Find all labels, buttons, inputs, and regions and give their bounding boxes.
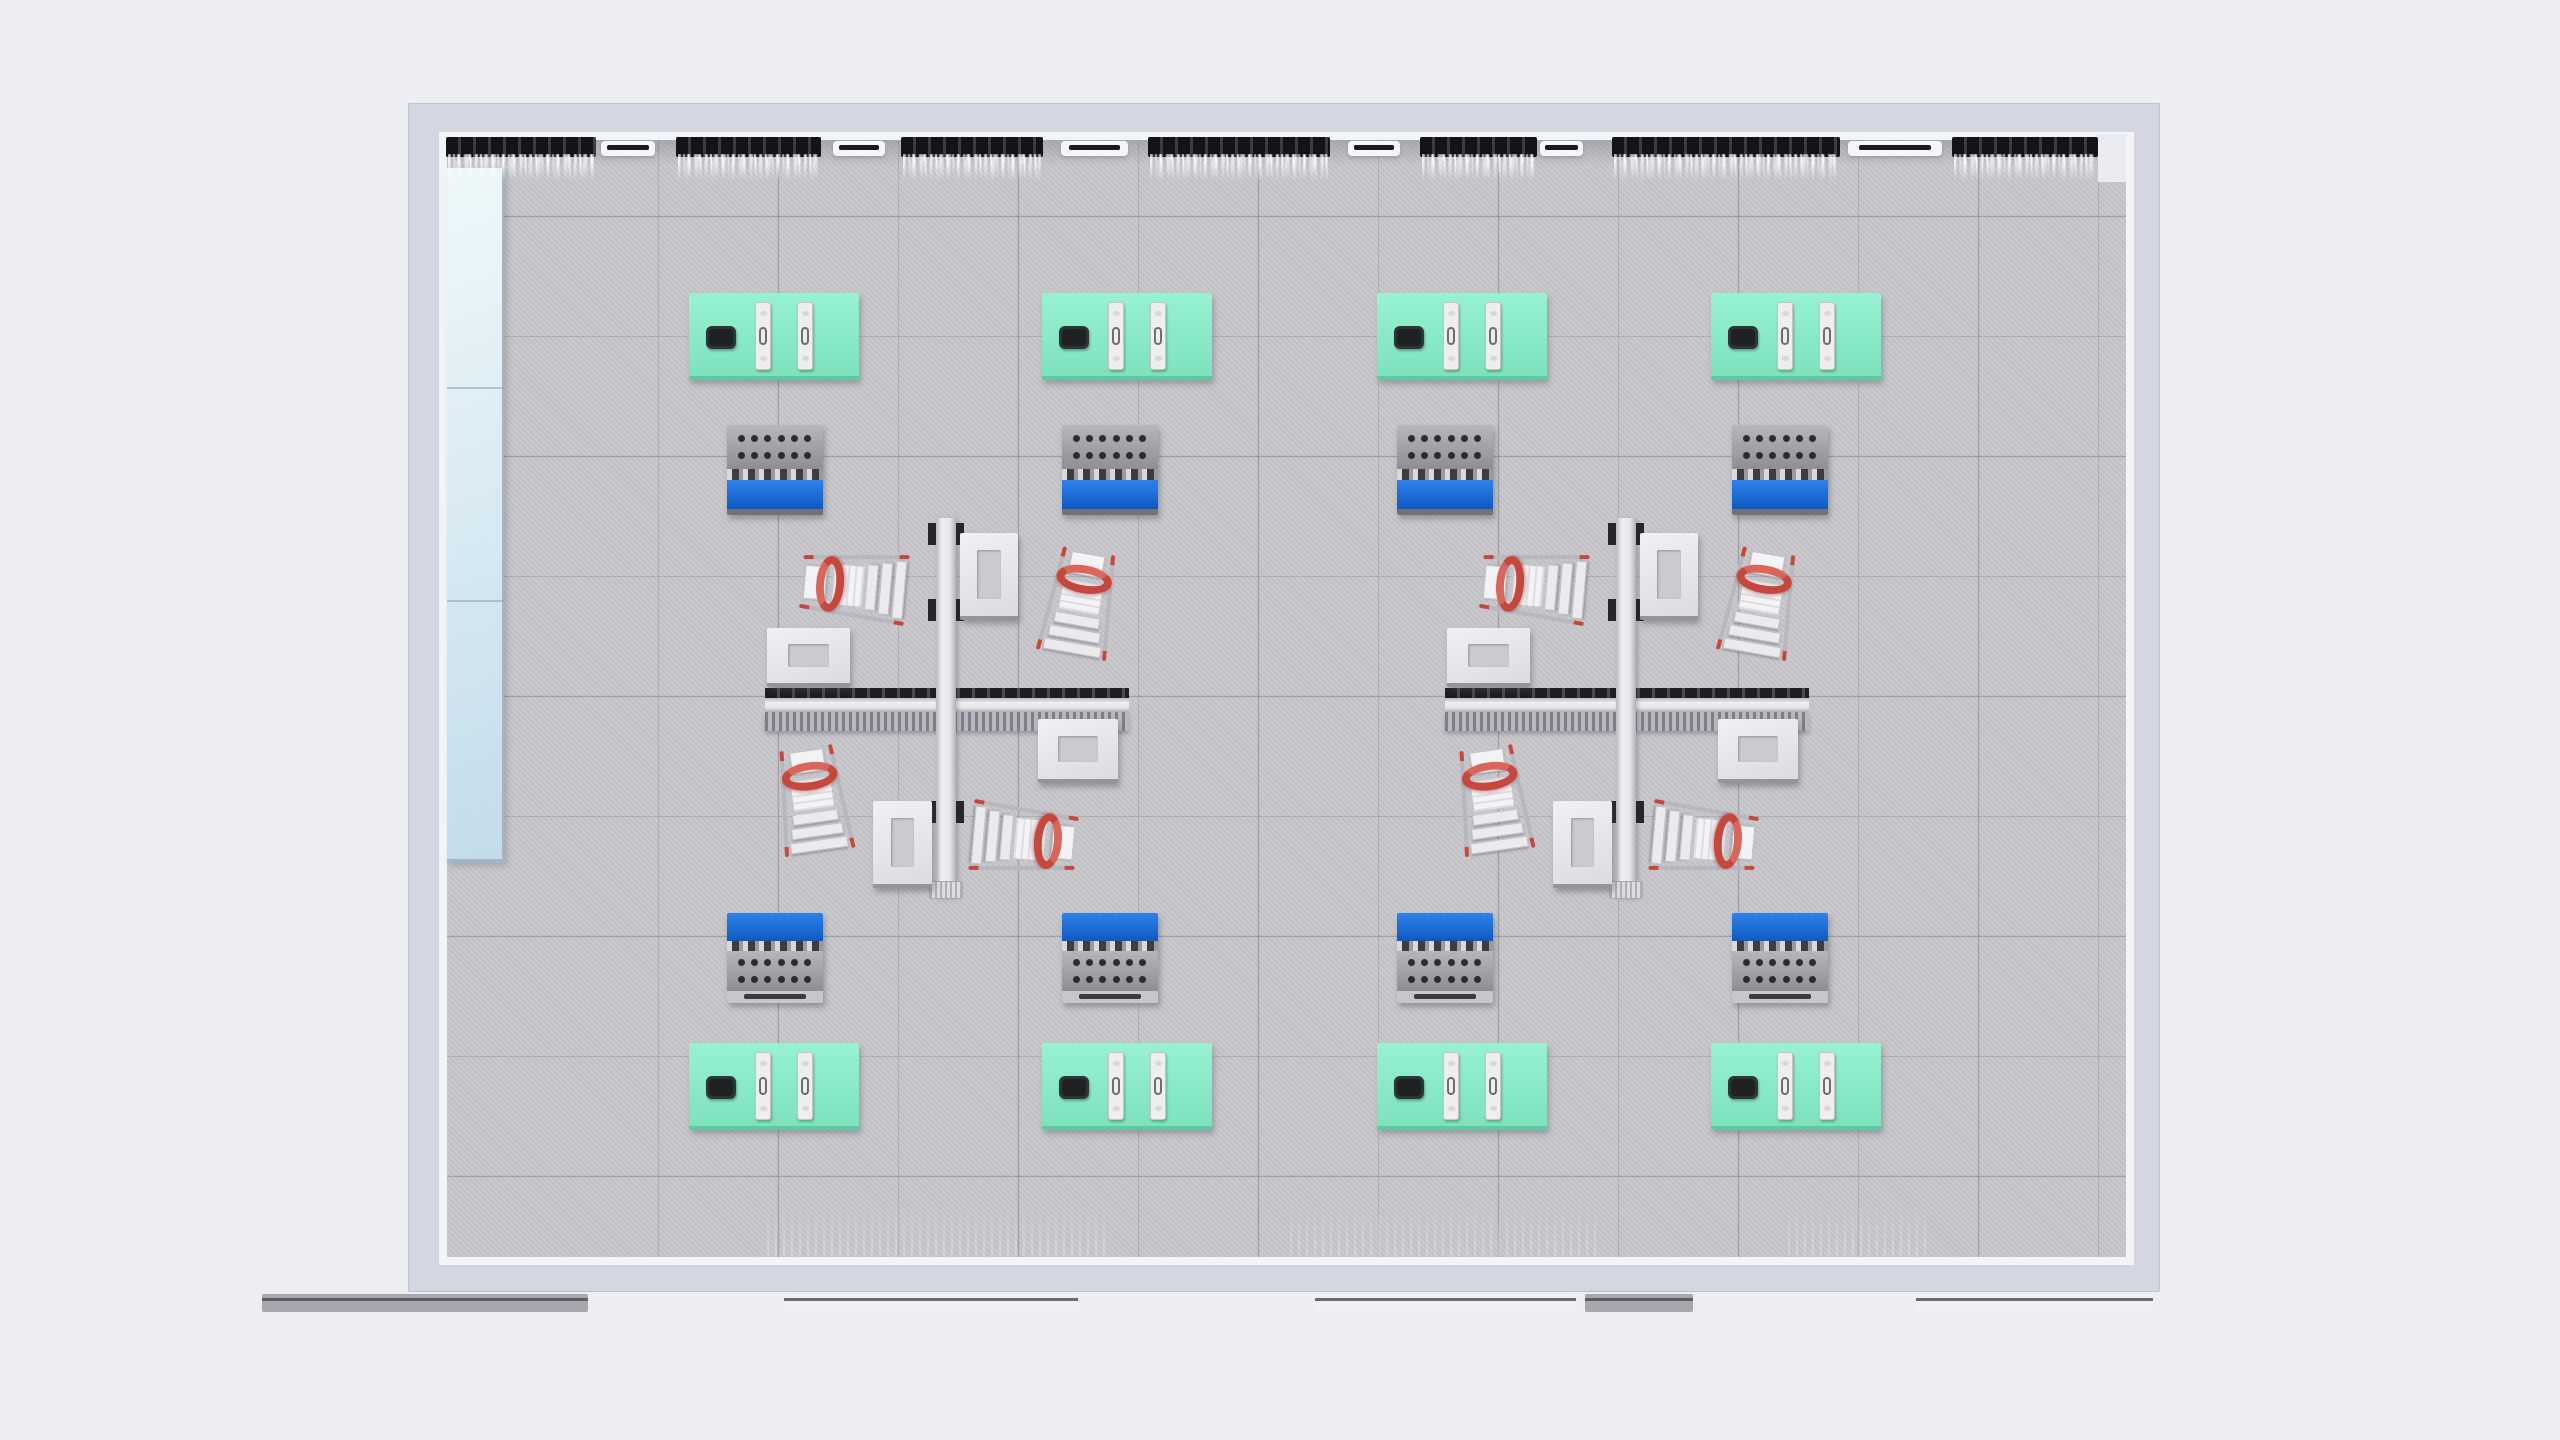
mint-table <box>1377 1043 1547 1130</box>
workstation-desk <box>1553 801 1612 888</box>
tablet <box>1394 326 1424 349</box>
pegboard-hole <box>1796 959 1803 966</box>
curtain-fringe <box>903 154 1041 181</box>
pegboard-hole <box>1461 452 1468 459</box>
pegboard-hole <box>804 976 811 983</box>
beam-foot-plate <box>929 881 963 899</box>
desk-recessed-panel <box>1738 736 1778 762</box>
pegboard-hole <box>791 976 798 983</box>
tool-cart <box>727 425 823 515</box>
pegboard-hole <box>1113 452 1120 459</box>
device-handle-cutout <box>1823 327 1831 345</box>
cart-base-edge <box>1062 509 1158 515</box>
curtain-fringe <box>1954 154 2096 181</box>
workstation-desk <box>1038 719 1118 783</box>
device-detail-oval <box>1824 1106 1831 1111</box>
pegboard-hole <box>791 452 798 459</box>
device-detail-oval <box>802 356 809 361</box>
handheld-device <box>1485 1052 1501 1120</box>
curtain-fringe <box>1614 154 1838 181</box>
device-handle-cutout <box>1781 327 1789 345</box>
pegboard-hole <box>1796 452 1803 459</box>
pegboard-hole <box>1769 452 1776 459</box>
window-sill-slot <box>1069 145 1120 150</box>
tablet <box>1728 1076 1758 1099</box>
cart-pegboard-top <box>1062 425 1158 469</box>
mint-table <box>689 1043 859 1130</box>
mint-table <box>1042 293 1212 380</box>
window-sill-slot <box>1354 145 1394 150</box>
pegboard-hole <box>738 959 745 966</box>
pegboard-hole <box>1073 435 1080 442</box>
device-detail-oval <box>1448 311 1455 316</box>
window-sill-slot <box>839 145 879 150</box>
pegboard-hole <box>1113 976 1120 983</box>
glass-panel-seam <box>447 600 504 602</box>
pegboard-hole <box>1743 959 1750 966</box>
chair-frame-rail-right <box>1484 555 1590 559</box>
bottom-curtain-reflection <box>767 1206 1110 1256</box>
pegboard-hole <box>764 976 771 983</box>
device-handle-cutout <box>759 1077 767 1095</box>
divider-vbar-beam <box>936 518 956 897</box>
pegboard-hole <box>751 452 758 459</box>
device-detail-oval <box>1490 356 1497 361</box>
tablet-screen <box>1397 329 1421 346</box>
window-sill-slot <box>607 145 648 150</box>
device-handle-cutout <box>1489 1077 1497 1095</box>
pegboard-hole <box>1126 959 1133 966</box>
pegboard-hole <box>1769 435 1776 442</box>
pegboard-hole <box>1769 976 1776 983</box>
cart-tool-tray <box>1397 469 1493 480</box>
device-handle-cutout <box>1112 1077 1120 1095</box>
handheld-device <box>1777 1052 1793 1120</box>
ledge-groove-line <box>784 1298 1078 1301</box>
window-sill-slot <box>1545 145 1578 150</box>
mint-table <box>689 293 859 380</box>
exterior-ledge-bar <box>1585 1294 1693 1312</box>
handheld-device <box>1150 302 1166 370</box>
pegboard-hole <box>1783 959 1790 966</box>
pegboard-hole <box>764 435 771 442</box>
handheld-device <box>1443 302 1459 370</box>
ledge-groove-line <box>1916 1298 2153 1301</box>
cart-tool-tray <box>1397 941 1493 951</box>
handheld-device <box>1485 302 1501 370</box>
desk-recessed-panel <box>1058 736 1098 762</box>
step-chair <box>1645 795 1763 882</box>
cart-tool-tray <box>1732 469 1828 480</box>
pegboard-hole <box>1783 435 1790 442</box>
chair-frame-rail-right <box>1648 866 1754 870</box>
curtain-fringe <box>678 154 819 181</box>
tool-cart <box>1397 913 1493 1003</box>
pegboard-hole <box>1434 452 1441 459</box>
tool-cart <box>1397 425 1493 515</box>
cart-handle-panel <box>727 991 823 1003</box>
desk-recessed-panel <box>788 644 830 668</box>
tablet-screen <box>1731 329 1755 346</box>
pegboard-hole <box>1756 976 1763 983</box>
pegboard-hole <box>1783 452 1790 459</box>
cart-tool-tray <box>1062 941 1158 951</box>
pegboard-hole <box>1809 435 1816 442</box>
exterior-ledge-bar <box>1315 1294 1576 1312</box>
workstation-desk <box>1447 628 1530 687</box>
window-sill <box>1540 141 1583 156</box>
pegboard-hole <box>764 452 771 459</box>
beam-clamp <box>956 801 964 823</box>
exterior-ledge-bar <box>784 1294 1078 1312</box>
cart-handle-panel <box>1732 991 1828 1003</box>
handheld-device <box>1108 302 1124 370</box>
chair-step-slat <box>1544 564 1559 611</box>
bottom-curtain-reflection <box>1788 1206 1927 1256</box>
pegboard-hole <box>1474 959 1481 966</box>
pegboard-hole <box>1126 435 1133 442</box>
desk-recessed-panel <box>977 550 1000 599</box>
pegboard-hole <box>1448 435 1455 442</box>
device-detail-oval <box>1782 311 1789 316</box>
pegboard-hole <box>1796 976 1803 983</box>
chair-frame-rail-left <box>780 751 790 857</box>
pegboard-hole <box>1769 959 1776 966</box>
exterior-ledge-bar <box>1916 1294 2153 1312</box>
pegboard-hole <box>1408 976 1415 983</box>
pegboard-hole <box>1448 976 1455 983</box>
window-sill <box>601 141 655 156</box>
pegboard-hole <box>778 452 785 459</box>
cart-blue-bin <box>1732 913 1828 941</box>
device-handle-cutout <box>1823 1077 1831 1095</box>
pegboard-hole <box>1474 452 1481 459</box>
device-handle-cutout <box>1781 1077 1789 1095</box>
cart-handle-slot <box>1414 994 1475 999</box>
pegboard-hole <box>1434 435 1441 442</box>
pegboard-hole <box>751 435 758 442</box>
tool-cart <box>727 913 823 1003</box>
device-detail-oval <box>1448 1061 1455 1066</box>
pegboard-hole <box>1113 435 1120 442</box>
pegboard-hole <box>804 452 811 459</box>
handheld-device <box>755 1052 771 1120</box>
mint-table <box>1042 1043 1212 1130</box>
tablet-screen <box>709 329 733 346</box>
beam-foot-plate <box>1609 881 1643 899</box>
pegboard-hole <box>1461 959 1468 966</box>
pegboard-hole <box>1099 976 1106 983</box>
cart-blue-bin <box>727 480 823 509</box>
pegboard-hole <box>1086 976 1093 983</box>
beam-clamp <box>1608 523 1616 545</box>
handheld-device <box>797 1052 813 1120</box>
pegboard-hole <box>1099 959 1106 966</box>
device-detail-oval <box>802 311 809 316</box>
cart-pegboard-top <box>727 951 823 991</box>
pegboard-hole <box>1783 976 1790 983</box>
pegboard-hole <box>1756 435 1763 442</box>
pegboard-hole <box>778 435 785 442</box>
step-chair <box>767 739 860 861</box>
workstation-desk <box>1640 533 1698 620</box>
handheld-device <box>755 302 771 370</box>
room-render <box>0 0 2560 1440</box>
device-handle-cutout <box>801 327 809 345</box>
cart-blue-bin <box>1062 913 1158 941</box>
pegboard-hole <box>1139 435 1146 442</box>
pegboard-hole <box>804 959 811 966</box>
pegboard-hole <box>1743 976 1750 983</box>
pegboard-hole <box>804 435 811 442</box>
tablet-screen <box>1731 1079 1755 1096</box>
handheld-device <box>797 302 813 370</box>
glass-panel-seam <box>447 387 504 389</box>
chair-step-slat <box>985 810 1000 863</box>
cart-base-edge <box>1732 509 1828 515</box>
device-detail-oval <box>1448 356 1455 361</box>
desk-recessed-panel <box>891 818 915 867</box>
pegboard-hole <box>1126 452 1133 459</box>
beam-clamp <box>928 599 936 621</box>
beam-clamp <box>1608 599 1616 621</box>
pegboard-hole <box>1408 435 1415 442</box>
tablet-screen <box>709 1079 733 1096</box>
device-detail-oval <box>802 1106 809 1111</box>
step-chair <box>795 542 913 629</box>
chair-step-slat <box>1558 562 1573 615</box>
chair-step-slat <box>1665 810 1680 863</box>
pegboard-hole <box>1421 959 1428 966</box>
cart-tool-tray <box>1732 941 1828 951</box>
device-detail-oval <box>1490 1106 1497 1111</box>
chair-frame-rail-right <box>804 555 910 559</box>
mint-table <box>1711 1043 1881 1130</box>
device-detail-oval <box>1155 356 1162 361</box>
chair-step-slat <box>1571 561 1587 620</box>
desk-recessed-panel <box>1468 644 1510 668</box>
pegboard-hole <box>1421 452 1428 459</box>
handheld-device <box>1819 1052 1835 1120</box>
exterior-ledge-bar <box>262 1294 588 1312</box>
device-detail-oval <box>760 1106 767 1111</box>
pegboard-hole <box>751 959 758 966</box>
pegboard-hole <box>1073 976 1080 983</box>
handheld-device <box>1108 1052 1124 1120</box>
mint-table <box>1711 293 1881 380</box>
cart-handle-slot <box>744 994 805 999</box>
device-handle-cutout <box>1489 327 1497 345</box>
pegboard-hole <box>1434 959 1441 966</box>
curtain-fringe <box>448 154 594 181</box>
cart-pegboard-top <box>1397 951 1493 991</box>
device-handle-cutout <box>1154 327 1162 345</box>
workstation-desk <box>1718 719 1798 783</box>
device-detail-oval <box>1490 311 1497 316</box>
cart-blue-bin <box>1397 480 1493 509</box>
desk-recessed-panel <box>1657 550 1680 599</box>
cart-pegboard-top <box>1732 425 1828 469</box>
handheld-device <box>1777 302 1793 370</box>
device-detail-oval <box>760 311 767 316</box>
pegboard-hole <box>738 435 745 442</box>
ledge-groove-line <box>262 1298 588 1301</box>
device-detail-oval <box>1782 1106 1789 1111</box>
cart-tool-tray <box>727 941 823 951</box>
tablet-screen <box>1062 1079 1086 1096</box>
device-detail-oval <box>760 356 767 361</box>
pegboard-hole <box>1809 976 1816 983</box>
step-chair <box>965 795 1083 882</box>
pegboard-hole <box>1743 452 1750 459</box>
device-handle-cutout <box>1112 327 1120 345</box>
workstation-desk <box>873 801 932 888</box>
pegboard-hole <box>1756 959 1763 966</box>
device-detail-oval <box>1782 356 1789 361</box>
curtain-fringe <box>1150 154 1328 181</box>
pegboard-hole <box>1073 452 1080 459</box>
cart-blue-bin <box>1062 480 1158 509</box>
cart-pegboard-top <box>727 425 823 469</box>
cart-blue-bin <box>727 913 823 941</box>
device-detail-oval <box>1155 1061 1162 1066</box>
pegboard-hole <box>1461 435 1468 442</box>
pegboard-hole <box>1743 435 1750 442</box>
pegboard-hole <box>1139 452 1146 459</box>
window-sill <box>833 141 885 156</box>
tablet <box>706 326 736 349</box>
tool-cart <box>1732 425 1828 515</box>
mint-table <box>1377 293 1547 380</box>
pegboard-hole <box>1421 976 1428 983</box>
handheld-device <box>1819 302 1835 370</box>
top-right-wall-block <box>2098 134 2126 182</box>
pegboard-hole <box>1073 959 1080 966</box>
tablet-screen <box>1062 329 1086 346</box>
pegboard-hole <box>791 435 798 442</box>
cart-base-edge <box>1397 509 1493 515</box>
tool-cart <box>1062 425 1158 515</box>
tablet <box>1728 326 1758 349</box>
pegboard-hole <box>1809 959 1816 966</box>
pegboard-hole <box>1448 452 1455 459</box>
chair-frame-rail-right <box>968 866 1074 870</box>
workstation-desk <box>960 533 1018 620</box>
tablet <box>706 1076 736 1099</box>
device-handle-cutout <box>1154 1077 1162 1095</box>
pegboard-hole <box>1434 976 1441 983</box>
device-detail-oval <box>1155 311 1162 316</box>
device-detail-oval <box>1113 356 1120 361</box>
cart-handle-panel <box>1062 991 1158 1003</box>
pegboard-hole <box>1756 452 1763 459</box>
pegboard-hole <box>738 976 745 983</box>
chair-step-slat <box>1651 806 1667 865</box>
cart-handle-slot <box>1749 994 1810 999</box>
bottom-curtain-reflection <box>1290 1206 1600 1256</box>
pegboard-hole <box>764 959 771 966</box>
pegboard-hole <box>1099 452 1106 459</box>
curtain-fringe <box>1422 154 1535 181</box>
device-detail-oval <box>760 1061 767 1066</box>
cart-base-edge <box>727 509 823 515</box>
device-handle-cutout <box>1447 1077 1455 1095</box>
device-detail-oval <box>1448 1106 1455 1111</box>
pegboard-hole <box>778 959 785 966</box>
pegboard-hole <box>1086 959 1093 966</box>
tablet <box>1059 1076 1089 1099</box>
pegboard-hole <box>778 976 785 983</box>
pegboard-hole <box>1139 959 1146 966</box>
device-detail-oval <box>1113 311 1120 316</box>
tablet <box>1059 326 1089 349</box>
pegboard-hole <box>1408 452 1415 459</box>
device-detail-oval <box>1155 1106 1162 1111</box>
ledge-groove-line <box>1585 1298 1693 1301</box>
cart-pegboard-top <box>1397 425 1493 469</box>
workstation-desk <box>767 628 850 687</box>
window-sill <box>1061 141 1128 156</box>
chair-step-slat <box>971 806 987 865</box>
window-sill <box>1848 141 1942 156</box>
device-detail-oval <box>1490 1061 1497 1066</box>
pegboard-hole <box>1796 435 1803 442</box>
wall-glass-panel <box>447 168 504 863</box>
pegboard-hole <box>751 976 758 983</box>
pegboard-hole <box>1126 976 1133 983</box>
pegboard-hole <box>1099 435 1106 442</box>
device-detail-oval <box>1824 1061 1831 1066</box>
pegboard-hole <box>1809 452 1816 459</box>
pegboard-hole <box>791 959 798 966</box>
beam-clamp <box>928 523 936 545</box>
device-detail-oval <box>1782 1061 1789 1066</box>
cart-pegboard-top <box>1732 951 1828 991</box>
desk-recessed-panel <box>1571 818 1595 867</box>
step-chair <box>1475 542 1593 629</box>
chair-step-slat <box>864 564 879 611</box>
pegboard-hole <box>1408 959 1415 966</box>
window-sill-slot <box>1859 145 1930 150</box>
pegboard-hole <box>1474 435 1481 442</box>
pegboard-hole <box>1448 959 1455 966</box>
chair-step-slat <box>891 561 907 620</box>
device-detail-oval <box>1824 311 1831 316</box>
pegboard-hole <box>1086 452 1093 459</box>
device-handle-cutout <box>759 327 767 345</box>
pegboard-hole <box>1139 976 1146 983</box>
pegboard-hole <box>1421 435 1428 442</box>
cart-tool-tray <box>727 469 823 480</box>
pegboard-hole <box>1086 435 1093 442</box>
tool-cart <box>1732 913 1828 1003</box>
step-chair <box>1447 739 1540 861</box>
beam-clamp <box>1636 801 1644 823</box>
handheld-device <box>1150 1052 1166 1120</box>
tool-cart <box>1062 913 1158 1003</box>
handheld-device <box>1443 1052 1459 1120</box>
cart-blue-bin <box>1732 480 1828 509</box>
pegboard-hole <box>1474 976 1481 983</box>
cart-blue-bin <box>1397 913 1493 941</box>
cart-handle-panel <box>1397 991 1493 1003</box>
ledge-groove-line <box>1315 1298 1576 1301</box>
device-detail-oval <box>1113 1061 1120 1066</box>
device-handle-cutout <box>1447 327 1455 345</box>
cart-tool-tray <box>1062 469 1158 480</box>
device-detail-oval <box>802 1061 809 1066</box>
chair-frame-rail-left <box>1460 751 1470 857</box>
